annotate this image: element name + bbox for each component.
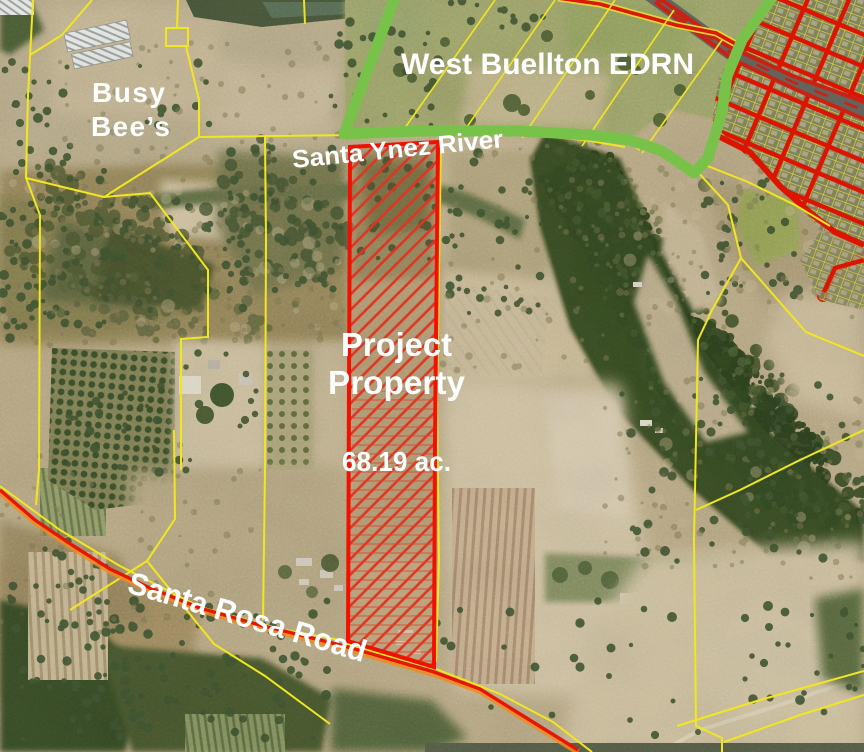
svg-text:Project: Project (341, 326, 452, 363)
svg-text:68.19 ac.: 68.19 ac. (342, 446, 451, 477)
svg-text:West Buellton EDRN: West Buellton EDRN (401, 48, 694, 81)
svg-text:Property: Property (328, 364, 466, 401)
svg-text:Bee’s: Bee’s (91, 111, 170, 142)
svg-text:Busy: Busy (92, 77, 165, 108)
